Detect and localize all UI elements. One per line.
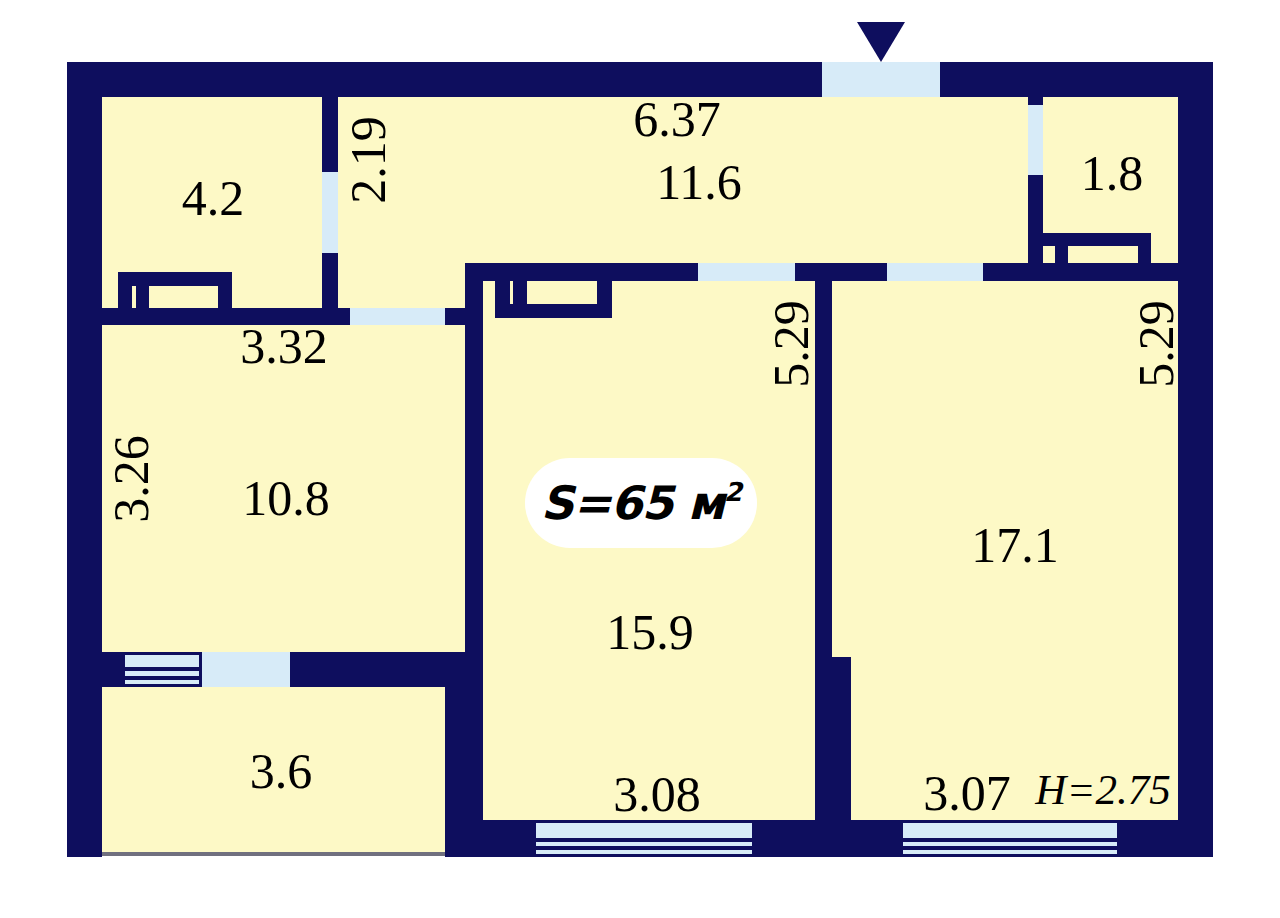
dimension-label: 3.07 — [923, 768, 1011, 818]
total-area-value: S=65 м — [541, 476, 724, 530]
entrance-door-opening — [822, 62, 940, 97]
wall-outer-right — [1178, 62, 1213, 857]
fixture-room42-bar — [136, 284, 149, 308]
entrance-arrow-icon — [857, 22, 905, 62]
room-area-label: 15.9 — [606, 607, 694, 657]
wall-living-bedroom-thick — [815, 657, 851, 822]
fixture-closet-bar — [1055, 246, 1068, 263]
fixture-room42-bar — [218, 284, 232, 308]
wall-balcony-row-left — [102, 652, 122, 687]
dimension-label: 2.19 — [343, 116, 393, 204]
window-glazing-line — [903, 846, 1117, 850]
total-area-badge: S=65 м2 — [525, 458, 757, 548]
window-glazing-line — [903, 838, 1117, 842]
window-glazing-line — [125, 676, 199, 680]
fixture-living-bar — [495, 281, 510, 306]
fixture-living-bar — [513, 281, 527, 306]
room-area-label: 4.2 — [182, 173, 245, 223]
room-area-label: 10.8 — [242, 473, 330, 523]
floor-plan: 4.2 6.37 11.6 1.8 2.19 3.32 3.26 10.8 5.… — [0, 0, 1280, 918]
fixture-living-bar — [597, 281, 612, 306]
fixture-closet-bar — [1138, 246, 1151, 263]
room-area-label: 17.1 — [971, 520, 1059, 570]
door-room42 — [322, 172, 338, 253]
dimension-label: 3.26 — [106, 435, 156, 523]
dimension-label: 3.08 — [613, 769, 701, 819]
room-area-label: 11.6 — [656, 157, 742, 207]
dimension-label: 6.37 — [633, 94, 721, 144]
ceiling-height-label: H=2.75 — [1035, 768, 1170, 811]
door-room108 — [350, 308, 445, 325]
fixture-closet-bar — [1041, 233, 1151, 246]
window-glazing-line — [536, 838, 752, 842]
door-closet — [1028, 105, 1043, 175]
window-living-room — [533, 820, 755, 857]
room-area-label: 1.8 — [1081, 148, 1144, 198]
wall-balcony-right — [445, 652, 483, 857]
door-bedroom — [887, 263, 983, 281]
window-glazing-line — [536, 846, 752, 850]
room-area-label: 3.6 — [250, 746, 313, 796]
dimension-label: 5.29 — [766, 300, 816, 388]
window-bedroom — [900, 820, 1120, 857]
door-balcony — [202, 652, 290, 687]
window-glazing-line — [125, 667, 199, 671]
wall-room108-right — [465, 263, 483, 652]
balcony-outer-edge — [102, 852, 445, 856]
total-area-superscript: 2 — [724, 477, 741, 507]
window-balcony — [122, 652, 202, 687]
door-living-room — [698, 263, 795, 281]
total-area-text: S=65 м2 — [541, 476, 741, 530]
wall-hall-bottom — [465, 263, 1213, 281]
fixture-room42-bar — [118, 284, 132, 308]
dimension-label: 5.29 — [1131, 300, 1181, 388]
dimension-label: 3.32 — [240, 321, 328, 371]
wall-outer-left — [67, 62, 102, 857]
fixture-living-bar — [495, 304, 612, 318]
